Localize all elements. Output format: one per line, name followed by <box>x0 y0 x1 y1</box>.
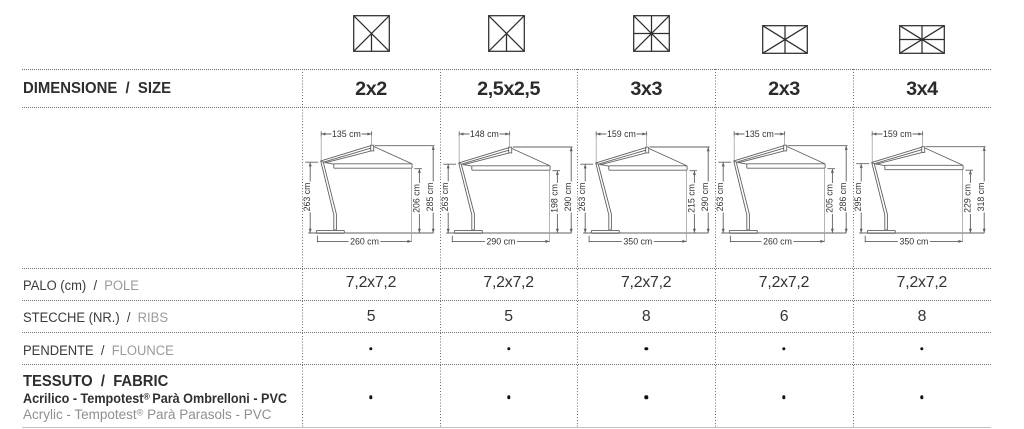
svg-text:350 cm: 350 cm <box>899 237 928 247</box>
svg-text:350 cm: 350 cm <box>623 237 652 247</box>
svg-text:260 cm: 260 cm <box>350 237 379 247</box>
svg-text:263 cm: 263 cm <box>715 183 725 212</box>
svg-text:215 cm: 215 cm <box>686 184 696 213</box>
svg-text:159 cm: 159 cm <box>607 129 636 139</box>
svg-text:318 cm: 318 cm <box>976 183 986 212</box>
svg-text:148 cm: 148 cm <box>470 129 499 139</box>
svg-text:205 cm: 205 cm <box>824 184 834 213</box>
svg-text:290 cm: 290 cm <box>700 183 710 212</box>
svg-text:290 cm: 290 cm <box>487 237 516 247</box>
svg-text:229 cm: 229 cm <box>962 184 972 213</box>
svg-text:135 cm: 135 cm <box>745 129 774 139</box>
svg-text:263 cm: 263 cm <box>302 183 312 212</box>
svg-text:135 cm: 135 cm <box>332 129 361 139</box>
svg-text:295 cm: 295 cm <box>853 183 863 212</box>
svg-text:159 cm: 159 cm <box>883 129 912 139</box>
svg-text:260 cm: 260 cm <box>763 237 792 247</box>
svg-text:206 cm: 206 cm <box>411 184 421 213</box>
svg-text:286 cm: 286 cm <box>838 183 848 212</box>
svg-text:198 cm: 198 cm <box>549 184 559 213</box>
svg-text:263 cm: 263 cm <box>440 183 450 212</box>
svg-text:285 cm: 285 cm <box>425 183 435 212</box>
svg-text:263 cm: 263 cm <box>577 183 587 212</box>
svg-text:290 cm: 290 cm <box>563 183 573 212</box>
